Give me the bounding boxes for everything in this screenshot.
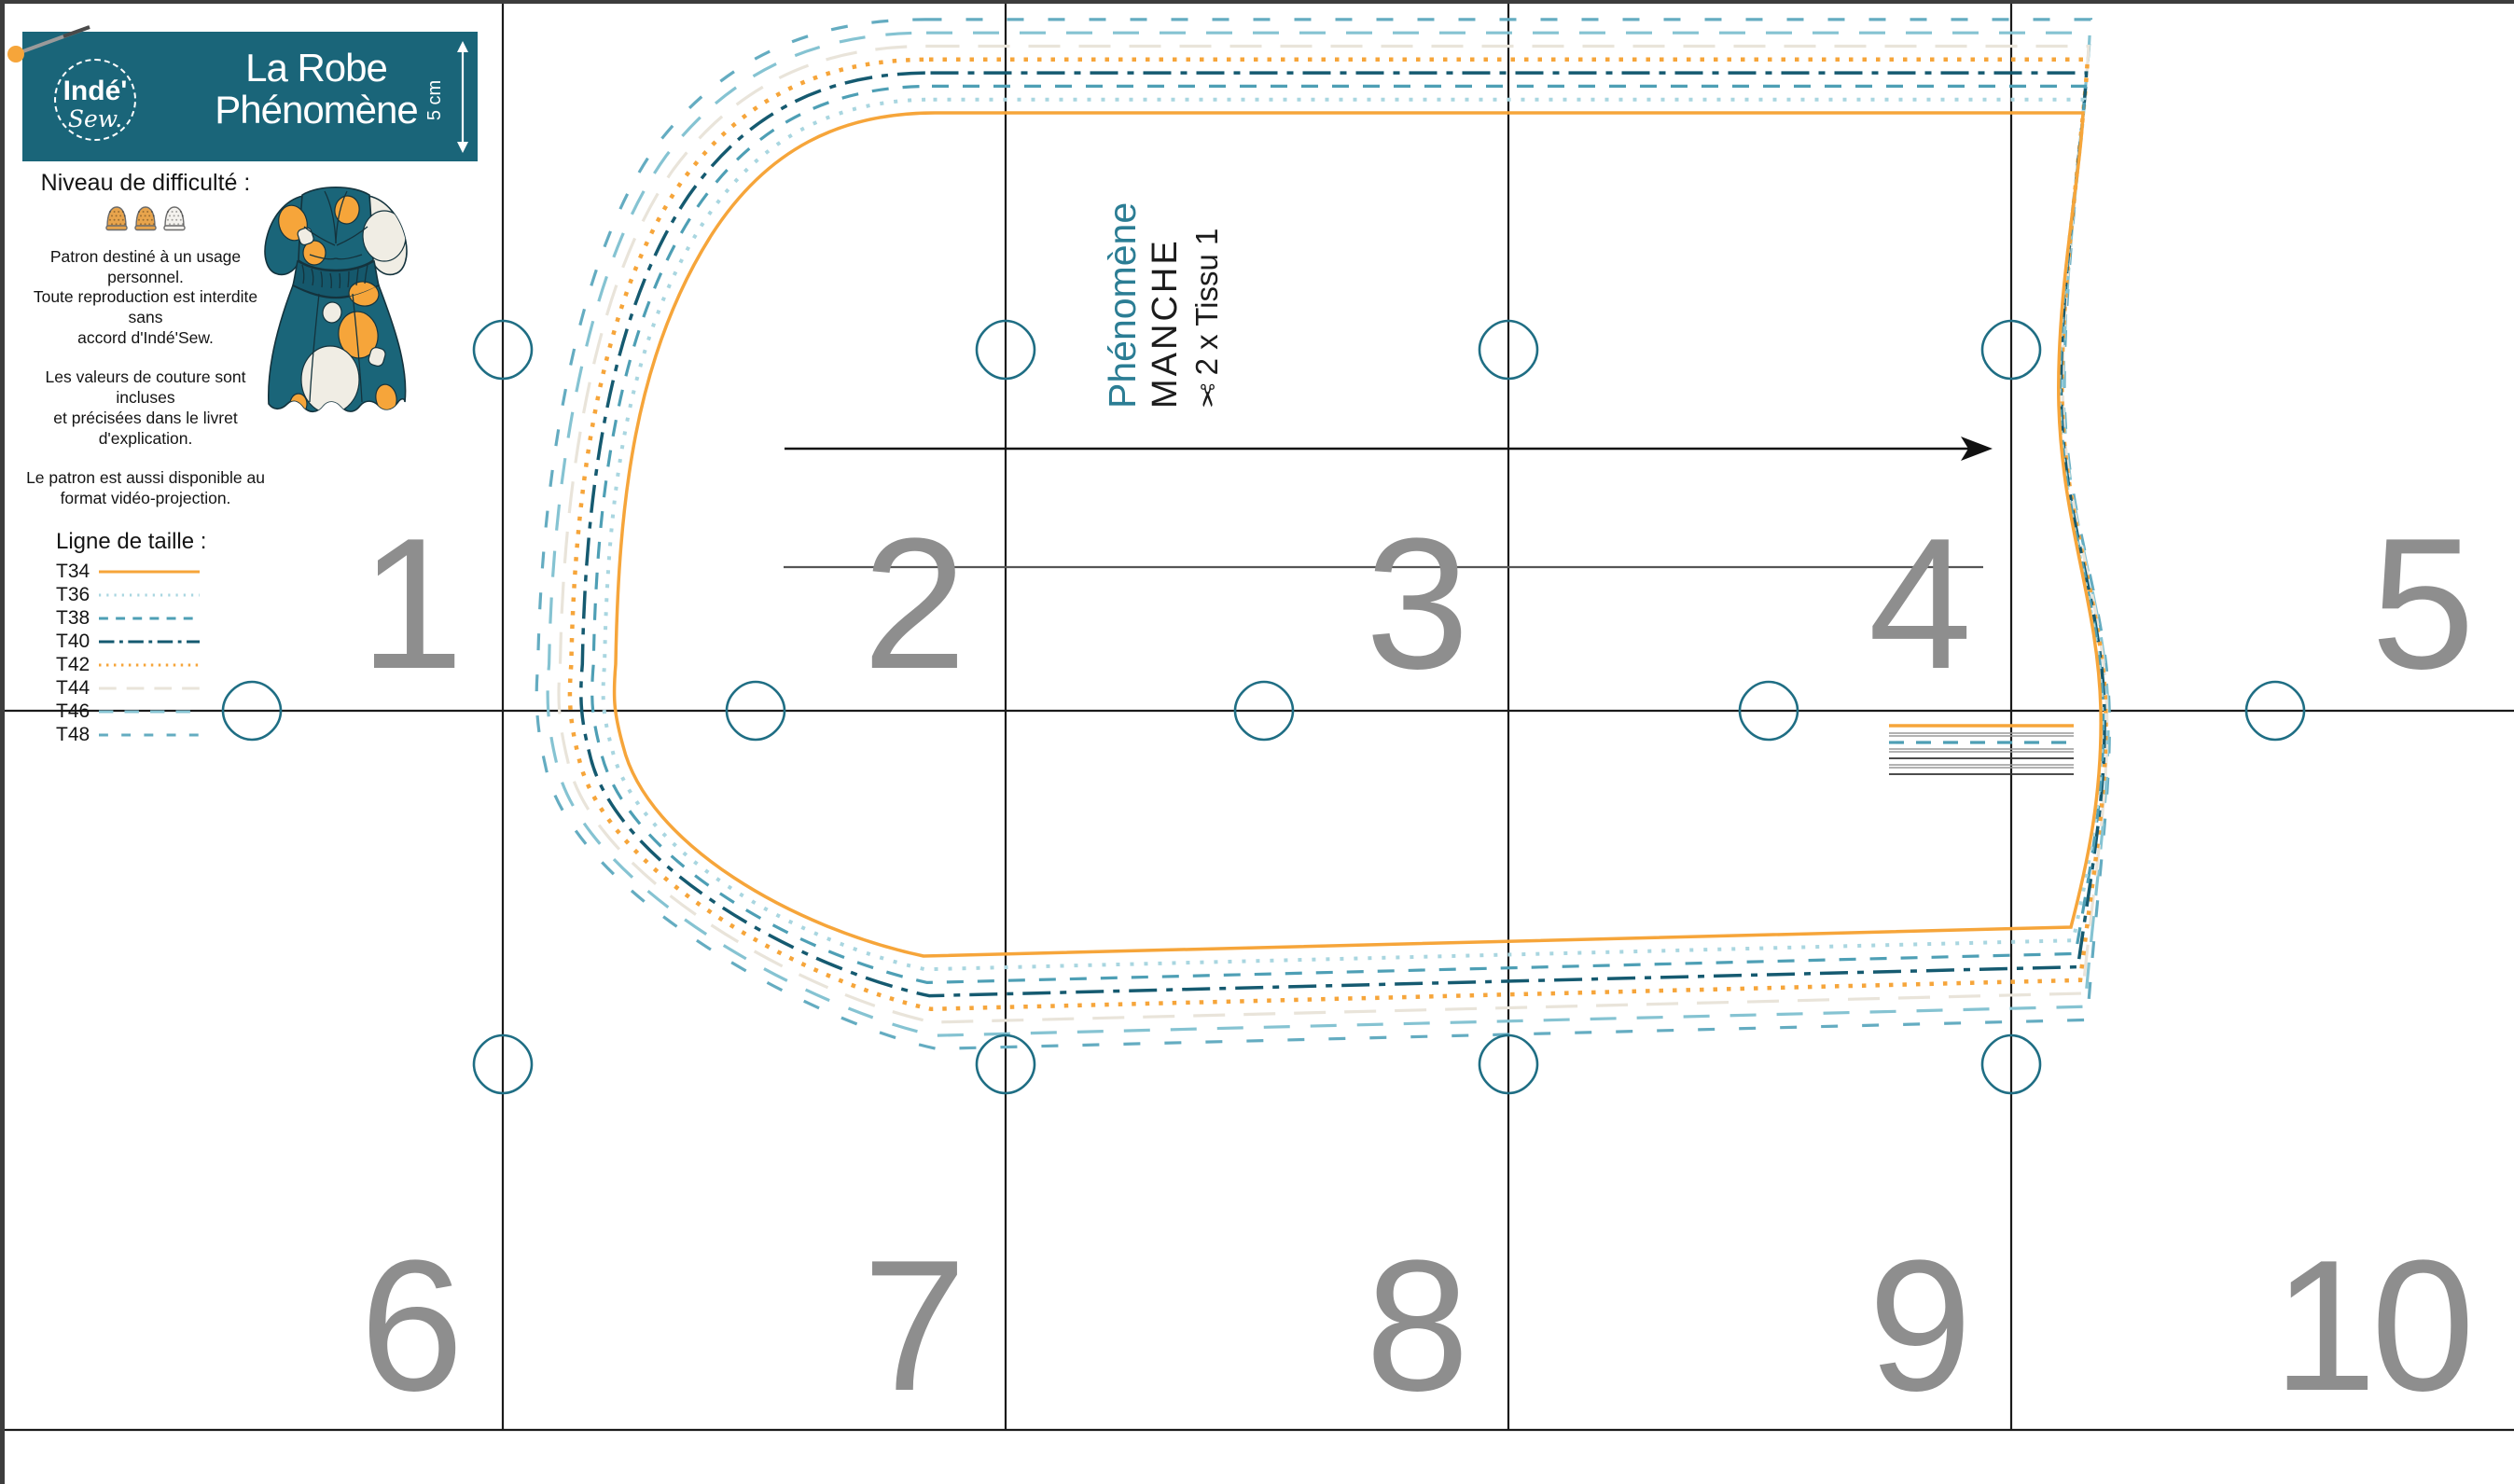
piece-cutting-instruction: ✂2 x Tissu 1 [1188, 202, 1226, 409]
size-label: T48 [56, 724, 97, 746]
size-line-swatch [97, 708, 201, 715]
size-line-swatch [97, 615, 201, 622]
size-label: T42 [56, 654, 97, 676]
size-line-swatch [97, 661, 201, 669]
info-panel: Niveau de difficulté : Patron destiné à … [21, 170, 271, 747]
grid-page-number: 8 [1366, 1233, 1464, 1420]
scale-label: 5 cm [424, 80, 446, 120]
usage-notice: Patron destiné à un usage personnel. Tou… [21, 247, 271, 348]
size-legend-row-T36: T36 [56, 584, 271, 607]
size-legend: T34T36T38T40T42T44T46T48 [21, 561, 271, 747]
difficulty-label: Niveau de difficulté : [21, 170, 271, 197]
size-legend-row-T34: T34 [56, 561, 271, 584]
pattern-title: La Robe Phénomène [200, 47, 433, 132]
size-legend-title: Ligne de taille : [56, 529, 271, 555]
size-legend-row-T46: T46 [56, 700, 271, 724]
size-label: T44 [56, 677, 97, 700]
thimble-icon-filled [104, 204, 129, 232]
size-label: T40 [56, 631, 97, 653]
size-legend-row-T40: T40 [56, 631, 271, 654]
pattern-title-line1: La Robe [245, 46, 387, 90]
thimble-icon-empty [162, 204, 187, 232]
piece-label: Phénomène MANCHE ✂2 x Tissu 1 [1101, 202, 1226, 409]
size-legend-row-T42: T42 [56, 654, 271, 677]
grid-page-number: 6 [360, 1233, 458, 1420]
piece-name: MANCHE [1145, 202, 1188, 409]
size-legend-row-T48: T48 [56, 724, 271, 747]
size-line-swatch [97, 568, 201, 576]
size-line-swatch [97, 685, 201, 692]
piece-cut-text: 2 x Tissu 1 [1189, 229, 1224, 376]
piece-collection-name: Phénomène [1101, 202, 1145, 409]
difficulty-thimbles [21, 204, 271, 232]
scale-arrow-icon [451, 39, 474, 155]
size-label: T34 [56, 561, 97, 583]
page-edge-left [0, 0, 5, 1484]
brand-name-top: Indé' [56, 76, 134, 107]
grid-page-number: 3 [1366, 511, 1464, 698]
size-legend-row-T38: T38 [56, 607, 271, 631]
grid-page-number: 10 [2273, 1233, 2469, 1420]
size-line-swatch [97, 731, 201, 739]
seam-allowance-notice: Les valeurs de couture sont incluses et … [21, 368, 271, 449]
page-edge-top [0, 0, 2514, 4]
size-label: T38 [56, 607, 97, 630]
grid-page-number: 2 [863, 511, 961, 698]
thimble-icon-filled [133, 204, 158, 232]
size-label: T46 [56, 700, 97, 723]
scissors-icon: ✂ [1188, 382, 1226, 409]
size-line-swatch [97, 638, 201, 645]
pattern-sheet-page: 12345678910 Phénomène MANCHE ✂2 x Tissu … [0, 0, 2514, 1484]
grid-page-number: 5 [2371, 511, 2469, 698]
brand-logo: Indé' Sew. [54, 59, 136, 141]
projection-notice: Le patron est aussi disponible au format… [21, 468, 271, 508]
size-legend-row-T44: T44 [56, 677, 271, 700]
size-line-swatch [97, 591, 201, 599]
grid-page-number: 4 [1868, 511, 1966, 698]
grid-page-number: 9 [1868, 1233, 1966, 1420]
grid-page-number: 7 [863, 1233, 961, 1420]
grid-page-number: 1 [360, 511, 458, 698]
dress-illustration [244, 171, 427, 421]
pattern-title-line2: Phénomène [215, 88, 418, 132]
size-label: T36 [56, 584, 97, 606]
brand-name-bottom: Sew. [56, 105, 134, 132]
pin-icon [4, 19, 101, 63]
